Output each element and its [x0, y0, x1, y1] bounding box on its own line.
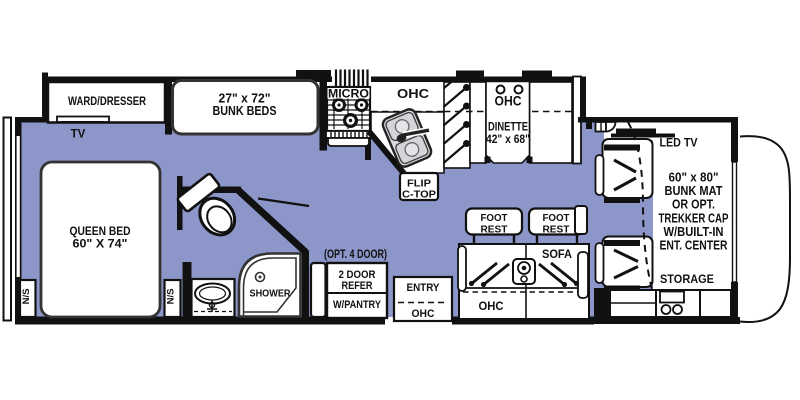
- svg-text:N/S: N/S: [166, 289, 177, 305]
- svg-text:BUNK BEDS: BUNK BEDS: [213, 104, 277, 118]
- svg-text:REFER: REFER: [342, 280, 373, 292]
- svg-text:REST: REST: [481, 224, 509, 236]
- svg-text:DINETTE: DINETTE: [488, 122, 528, 134]
- svg-text:QUEEN BED: QUEEN BED: [70, 226, 131, 238]
- svg-text:60" X 74": 60" X 74": [73, 239, 128, 251]
- svg-text:OHC: OHC: [495, 94, 522, 109]
- svg-text:REST: REST: [543, 224, 571, 236]
- svg-text:FOOT: FOOT: [481, 212, 509, 224]
- svg-text:(OPT. 4 DOOR): (OPT. 4 DOOR): [324, 247, 387, 261]
- svg-text:OR OPT.: OR OPT.: [672, 198, 715, 212]
- svg-text:SHOWER: SHOWER: [250, 288, 291, 300]
- svg-text:N/S: N/S: [21, 289, 32, 305]
- svg-text:LED TV: LED TV: [660, 138, 698, 150]
- svg-text:W/BUILT-IN: W/BUILT-IN: [664, 225, 724, 239]
- svg-text:TREKKER CAP: TREKKER CAP: [659, 211, 729, 225]
- svg-text:42" x 68": 42" x 68": [486, 134, 530, 146]
- svg-text:SOFA: SOFA: [542, 247, 572, 261]
- svg-text:FOOT: FOOT: [543, 212, 571, 224]
- svg-text:OHC: OHC: [412, 308, 435, 320]
- svg-text:OHC: OHC: [479, 299, 504, 313]
- svg-text:OHC: OHC: [397, 86, 430, 101]
- svg-text:C-TOP: C-TOP: [402, 189, 436, 201]
- svg-text:MICRO: MICRO: [328, 89, 369, 101]
- svg-text:60" x 80": 60" x 80": [669, 171, 719, 185]
- svg-text:ENTRY: ENTRY: [407, 282, 441, 294]
- svg-text:ENT. CENTER: ENT. CENTER: [660, 239, 728, 253]
- svg-text:WARD/DRESSER: WARD/DRESSER: [68, 96, 147, 108]
- svg-text:W/PANTRY: W/PANTRY: [333, 299, 382, 311]
- svg-text:TV: TV: [71, 129, 86, 141]
- svg-text:BUNK MAT: BUNK MAT: [665, 184, 723, 198]
- svg-text:STORAGE: STORAGE: [660, 274, 714, 286]
